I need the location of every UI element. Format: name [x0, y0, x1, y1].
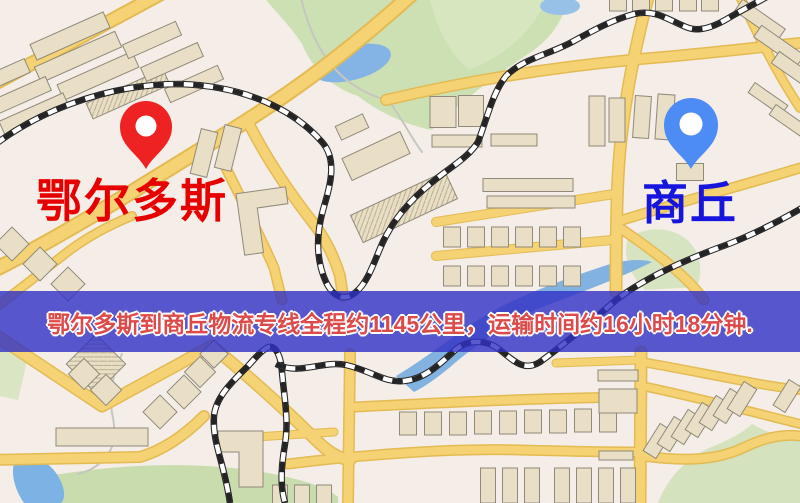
- map-screenshot: 鄂尔多斯 商丘 鄂尔多斯到商丘物流专线全程约1145公里，运输时间约16小时18…: [0, 0, 800, 503]
- route-info-banner: 鄂尔多斯到商丘物流专线全程约1145公里，运输时间约16小时18分钟.: [0, 291, 800, 352]
- destination-label: 商丘: [642, 181, 738, 227]
- origin-label: 鄂尔多斯: [36, 179, 228, 225]
- route-info-text: 鄂尔多斯到商丘物流专线全程约1145公里，运输时间约16小时18分钟.: [47, 305, 752, 339]
- map-background: [0, 0, 800, 503]
